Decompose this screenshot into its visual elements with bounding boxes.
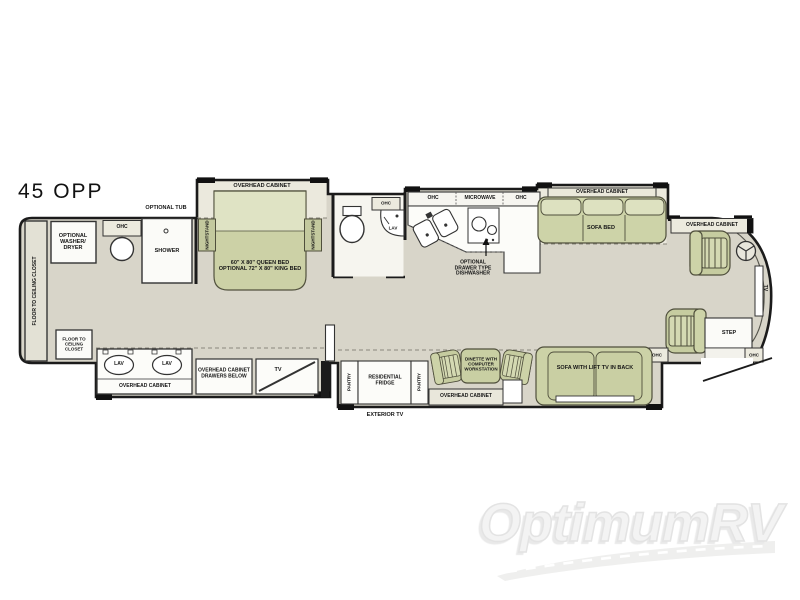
dinette-ohc-label: OVERHEAD CABINET: [440, 394, 492, 400]
nightstand-left-label: NIGHTSTAND: [204, 220, 209, 249]
lav-right-label: LAV: [162, 362, 172, 368]
driver-chair: [690, 231, 730, 275]
bedroom-closet-label: FLOOR TO CEILING CLOSET: [62, 336, 85, 351]
page-title: 45 OPP: [18, 180, 104, 204]
passenger-chair: [666, 309, 706, 353]
mid-bath-lav-label: LAV: [389, 225, 398, 230]
kitchen-ohc-left-label: OHC: [427, 196, 438, 202]
door-ohc-right-label: OHC: [749, 352, 759, 357]
shower-label: SHOWER: [155, 248, 180, 254]
drawer-cabinet-label: OVERHEAD CABINET DRAWERS BELOW: [198, 368, 250, 379]
vanity-ohc-label: OVERHEAD CABINET: [119, 384, 171, 390]
pantry-left-label: PANTRY: [346, 373, 351, 391]
watermark-brand: OptimumRV: [479, 492, 782, 554]
rear-bath-ohc-label: OHC: [116, 225, 127, 231]
sofa-lift-tv-label: SOFA WITH LIFT TV IN BACK: [535, 365, 655, 371]
dinette-label: DINETTE WITH COMPUTER WORKSTATION: [464, 356, 497, 371]
washer-dryer-label: OPTIONAL WASHER/ DRYER: [59, 233, 87, 251]
bedroom-tv-label: TV: [274, 367, 281, 373]
rear-closet-label: FLOOR TO CEILING CLOSET: [33, 256, 39, 325]
mid-bath-ohc-label: OHC: [381, 200, 391, 205]
dishwasher-label: OPTIONAL DRAWER TYPE DISHWASHER: [455, 261, 492, 278]
floorplan-page: 45 OPP OPTIONAL TUB FLOOR TO CEILING CLO…: [0, 0, 800, 600]
sofa-bed-label: SOFA BED: [587, 225, 615, 231]
bedroom-ohc-label: OVERHEAD CABINET: [233, 183, 290, 189]
kitchen-ohc-right-label: OHC: [515, 196, 526, 202]
living-ohc-label: OVERHEAD CABINET: [576, 190, 628, 196]
cockpit-tv-label: TV: [761, 285, 767, 291]
cooktop: [468, 208, 499, 243]
microwave-label: MICROWAVE: [464, 196, 495, 202]
bed-label: 60" X 80" QUEEN BED OPTIONAL 72" X 80" K…: [219, 260, 301, 272]
queen-bed: [214, 191, 306, 290]
sofa-lift-tv: [536, 347, 652, 405]
pantry-right-label: PANTRY: [416, 373, 421, 391]
steering-wheel: [737, 242, 756, 261]
step-label: STEP: [722, 330, 736, 336]
sofa-bed: [538, 188, 666, 243]
optional-tub-label: OPTIONAL TUB: [145, 205, 186, 211]
door-ohc-left-label: OHC: [652, 352, 662, 357]
cockpit-ohc-label: OVERHEAD CABINET: [686, 223, 738, 229]
lav-left-label: LAV: [114, 362, 124, 368]
exterior-tv-label: EXTERIOR TV: [367, 412, 404, 418]
mid-bath: [335, 196, 405, 277]
watermark: OptimumRV: [470, 492, 790, 587]
fridge-label: RESIDENTIAL FRIDGE: [368, 375, 401, 386]
nightstand-right-label: NIGHTSTAND: [310, 220, 315, 249]
wall-pillar: [321, 361, 329, 397]
bedroom-door: [326, 325, 335, 361]
bedroom-tv: [256, 359, 318, 394]
